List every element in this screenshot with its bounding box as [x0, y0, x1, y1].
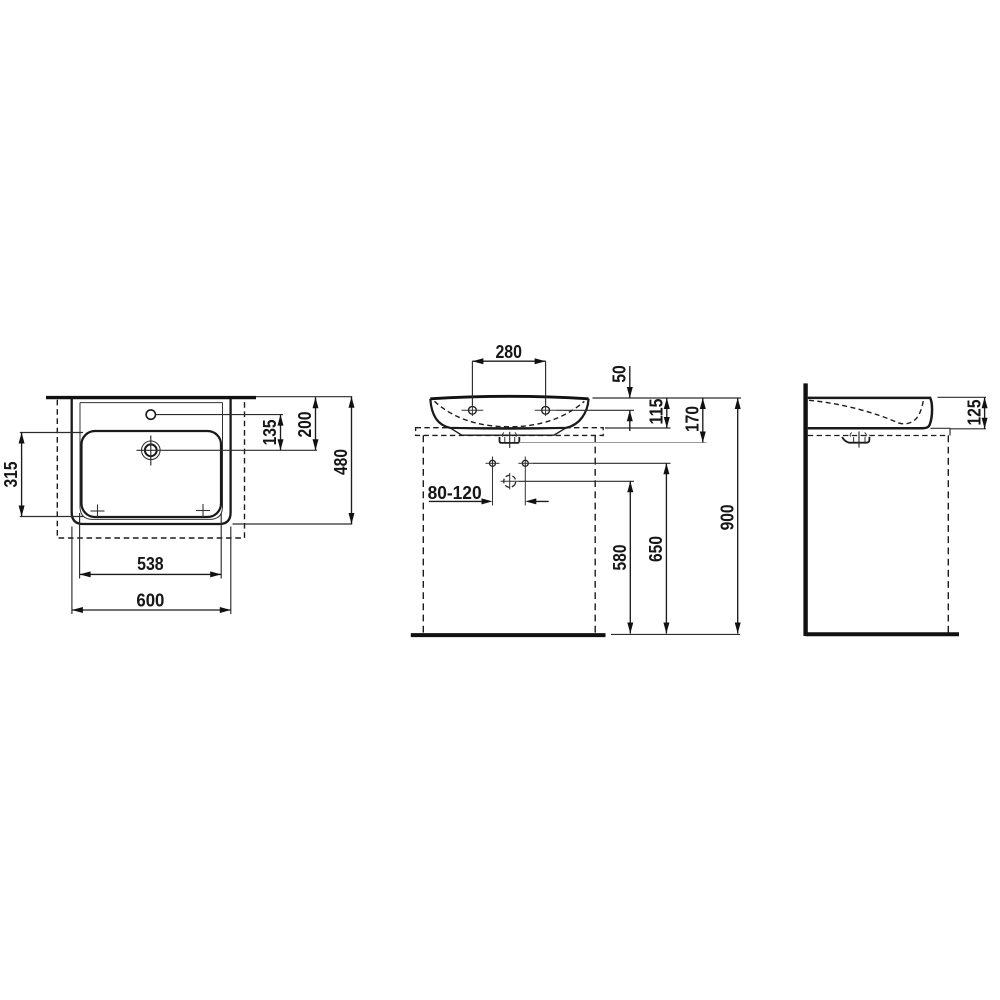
- svg-text:538: 538: [137, 553, 164, 574]
- svg-text:135: 135: [259, 419, 280, 445]
- svg-text:115: 115: [646, 399, 667, 425]
- svg-text:125: 125: [963, 400, 984, 426]
- svg-text:80-120: 80-120: [428, 482, 482, 503]
- svg-text:650: 650: [645, 536, 666, 562]
- svg-text:280: 280: [495, 341, 522, 362]
- svg-text:50: 50: [609, 365, 630, 383]
- svg-text:900: 900: [716, 504, 737, 530]
- svg-text:580: 580: [609, 545, 630, 571]
- svg-text:600: 600: [136, 590, 164, 611]
- svg-text:200: 200: [294, 412, 315, 438]
- svg-text:170: 170: [682, 406, 703, 432]
- svg-text:315: 315: [0, 462, 21, 488]
- svg-text:480: 480: [330, 449, 351, 475]
